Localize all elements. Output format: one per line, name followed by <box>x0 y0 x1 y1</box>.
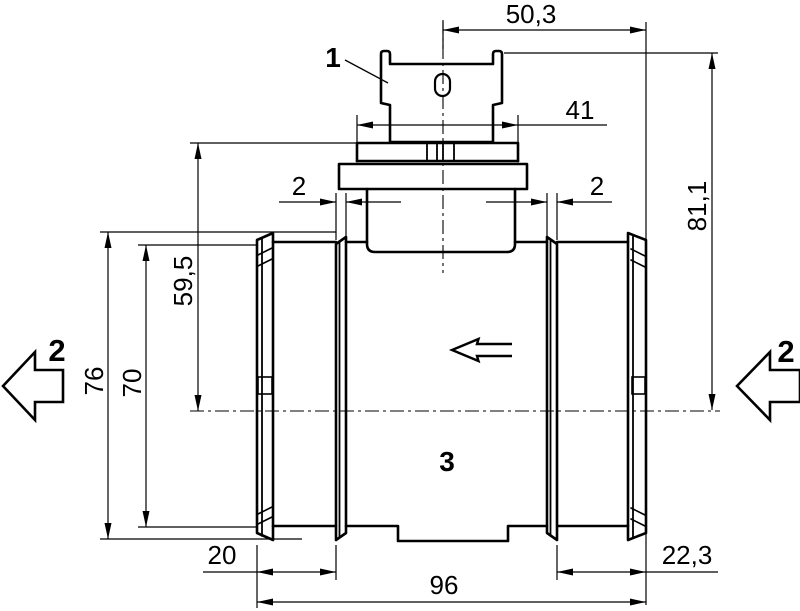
right-rim-notch <box>632 377 645 394</box>
seal-ring-left <box>336 237 346 540</box>
right-bell-rim <box>628 233 646 540</box>
flow-direction-arrow <box>452 339 512 361</box>
part-label-connector: 1 <box>325 42 341 73</box>
dim-flange-to-axis-label: 59,5 <box>168 256 198 307</box>
dim-tube-diameter-label: 70 <box>117 369 147 398</box>
flange-tab-left <box>427 143 437 161</box>
part-label-housing: 3 <box>439 446 455 477</box>
dim-right-offset-label: 22,3 <box>662 540 713 570</box>
part-label-flow-left: 2 <box>48 333 65 368</box>
dim-tube-length-label: 96 <box>430 570 459 600</box>
dim-connector-flange-width-label: 41 <box>566 95 595 125</box>
dim-total-height-label: 81,1 <box>682 181 712 232</box>
flange-tab-right <box>443 143 454 161</box>
flange-lower <box>339 164 527 189</box>
dim-outer-diameter-label: 76 <box>79 367 109 396</box>
sensor-skirt <box>367 189 515 252</box>
tube-bottom-step <box>346 526 547 541</box>
rim-details <box>258 248 645 526</box>
dim-top-width-label: 50,3 <box>506 0 557 29</box>
left-bell-rim <box>257 233 273 540</box>
seal-ring-right <box>547 237 557 540</box>
dimension-arrowheads <box>105 27 716 606</box>
part-label-flow-right: 2 <box>777 334 794 369</box>
dim-left-offset-label: 20 <box>208 540 237 570</box>
dim-seal-ring-left-label: 2 <box>292 171 306 201</box>
dim-seal-ring-right-label: 2 <box>590 171 604 201</box>
technical-drawing-page: 50,3 41 2 2 81,1 59,5 76 70 20 22,3 96 1… <box>0 0 800 611</box>
airflow-sensor-dimension-drawing: 50,3 41 2 2 81,1 59,5 76 70 20 22,3 96 1… <box>0 0 800 611</box>
dimension-lines <box>100 21 718 608</box>
left-rim-notch <box>258 377 272 394</box>
